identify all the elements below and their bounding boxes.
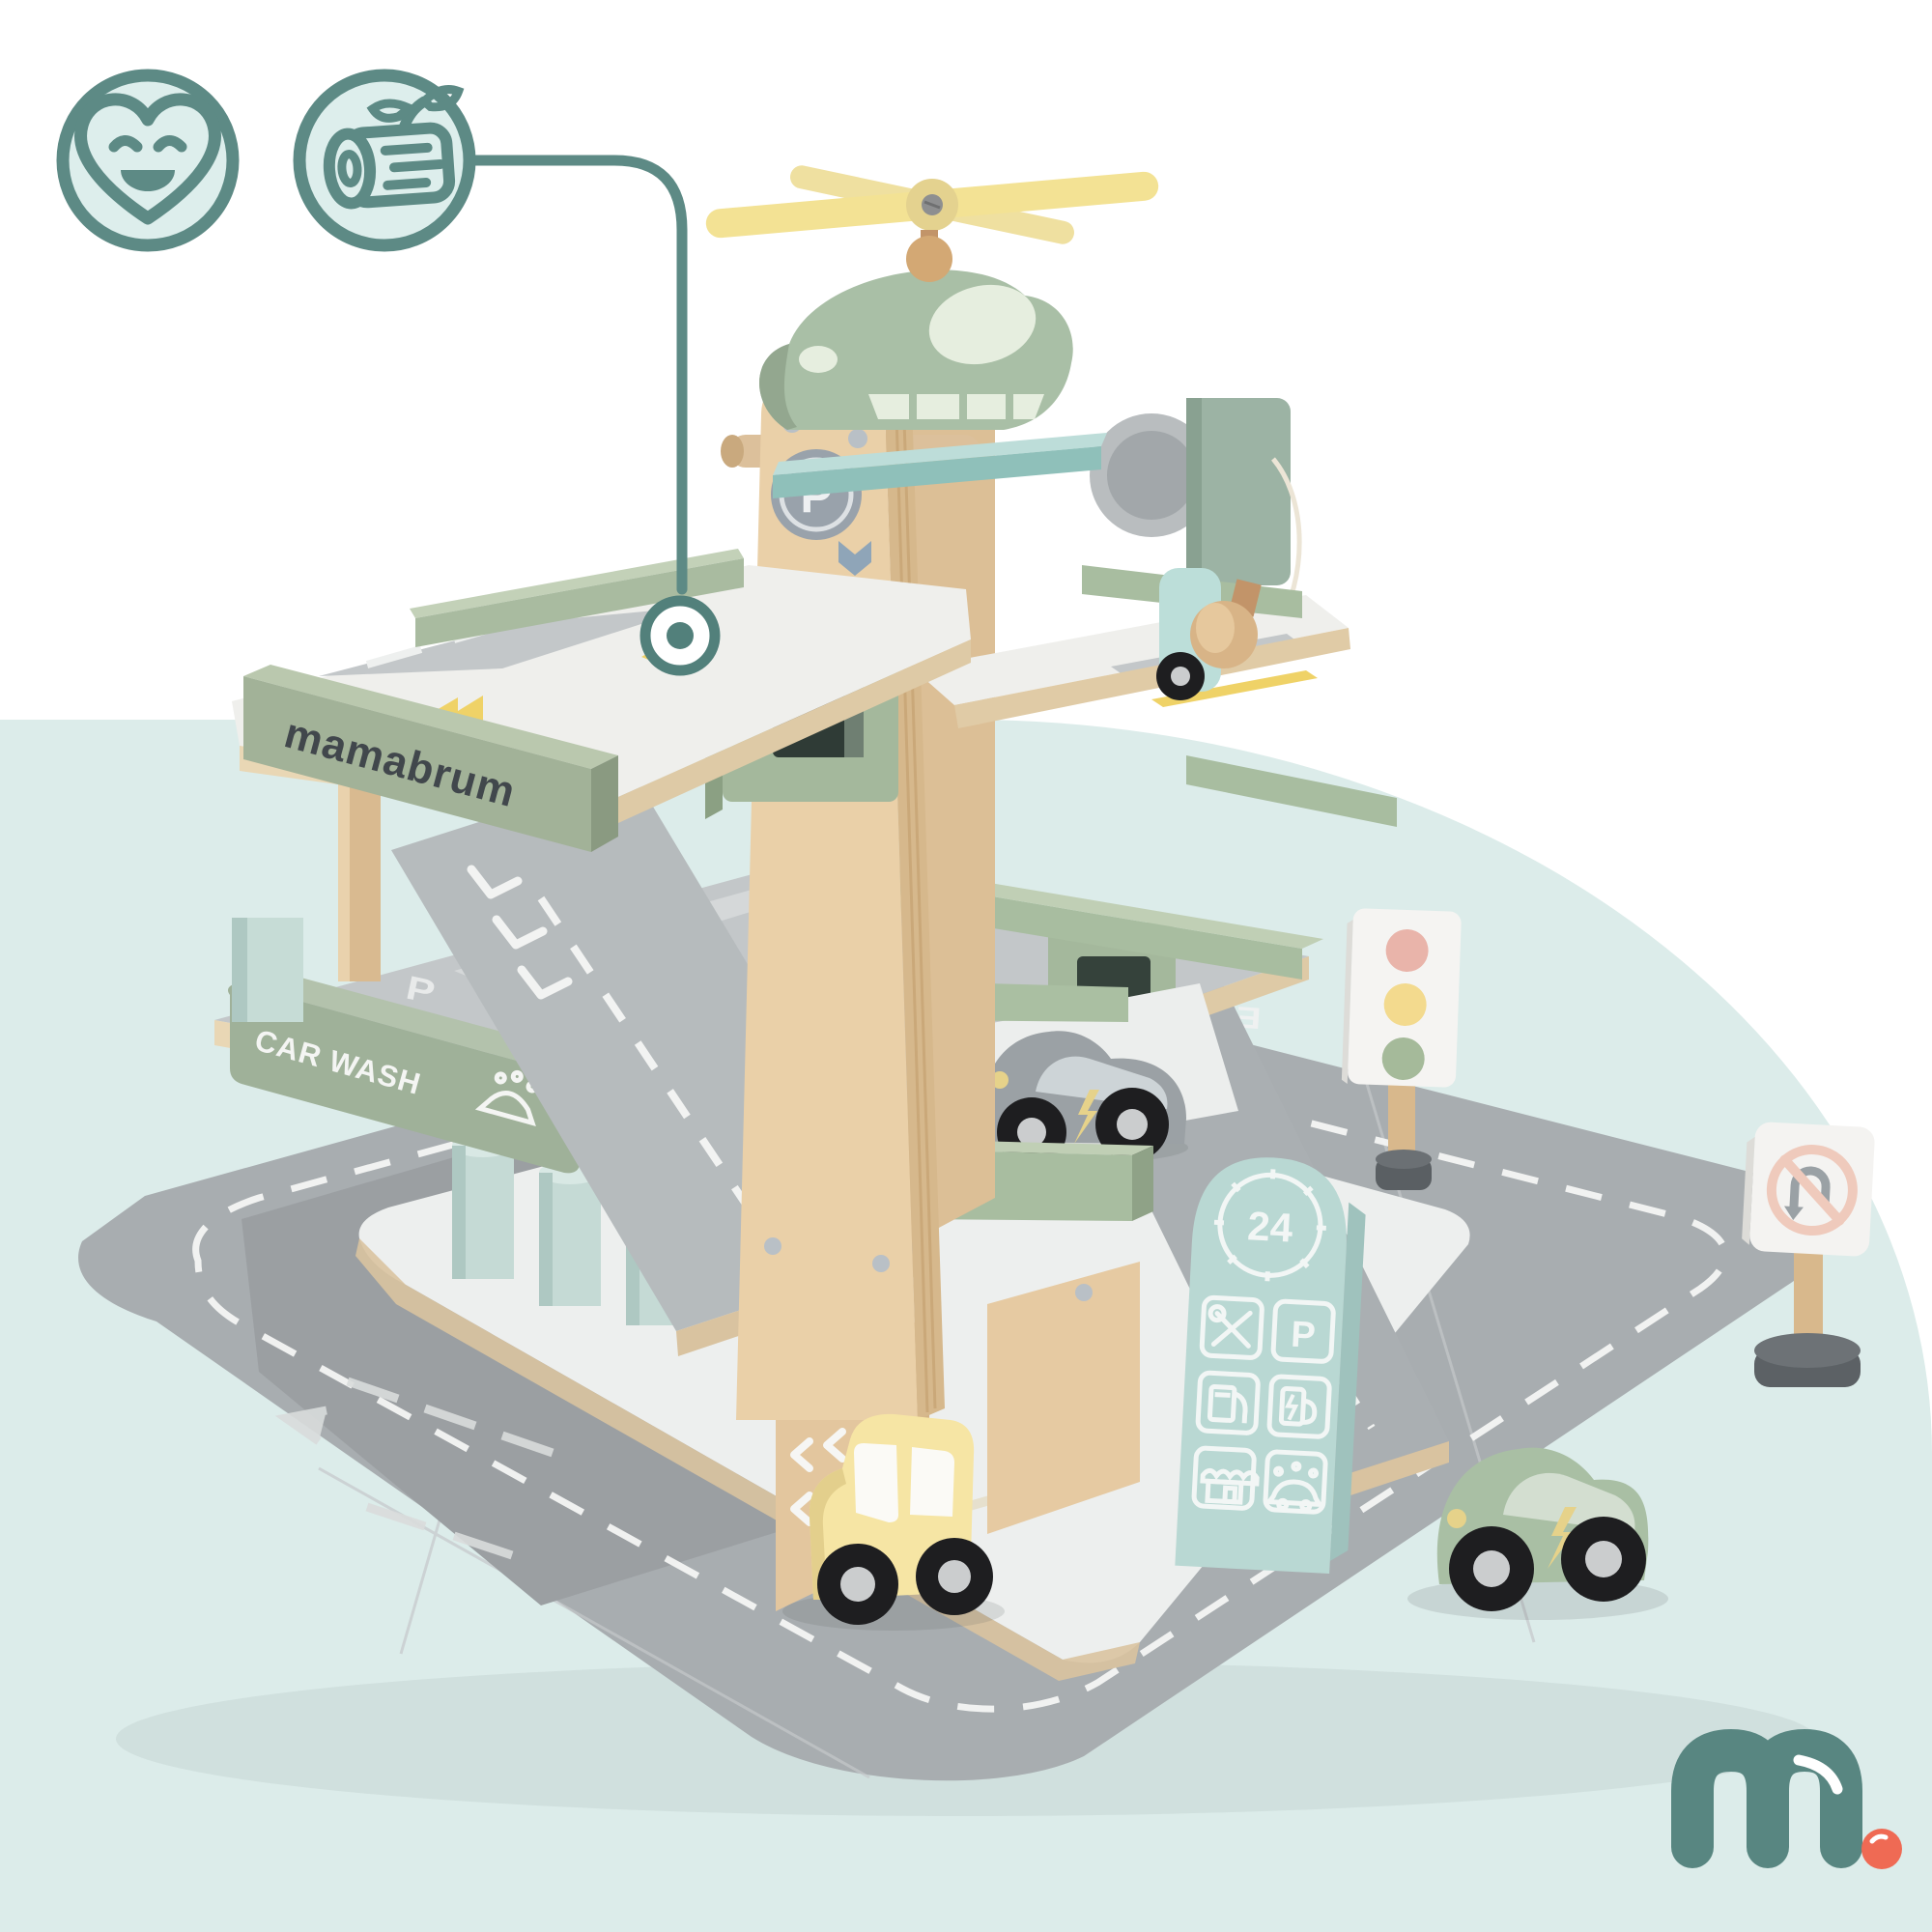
- bus-window-2: [910, 1447, 954, 1517]
- wooden-pillar: [338, 781, 381, 981]
- back-rail: [1186, 755, 1397, 827]
- rotor-knob: [906, 236, 952, 282]
- helicopter: [705, 163, 1160, 430]
- service-hours-label: 24: [1246, 1203, 1294, 1250]
- no-uturn-base: [1754, 1333, 1861, 1387]
- traffic-light-base: [1376, 1150, 1432, 1190]
- product-photo: EXIT: [0, 0, 1932, 1932]
- smiling-heart-icon: [63, 75, 233, 245]
- eco-wood-log-icon: [299, 75, 469, 245]
- tower-front-panel: P: [736, 375, 945, 1420]
- service-sign-24: 24 P: [1175, 1153, 1368, 1575]
- toy-scene: EXIT: [0, 0, 1932, 1932]
- bus-window-1: [854, 1443, 898, 1522]
- service-parking-letter: P: [1290, 1315, 1317, 1356]
- heli-rotor: [705, 163, 1160, 282]
- brand-logo: [1692, 1750, 1902, 1869]
